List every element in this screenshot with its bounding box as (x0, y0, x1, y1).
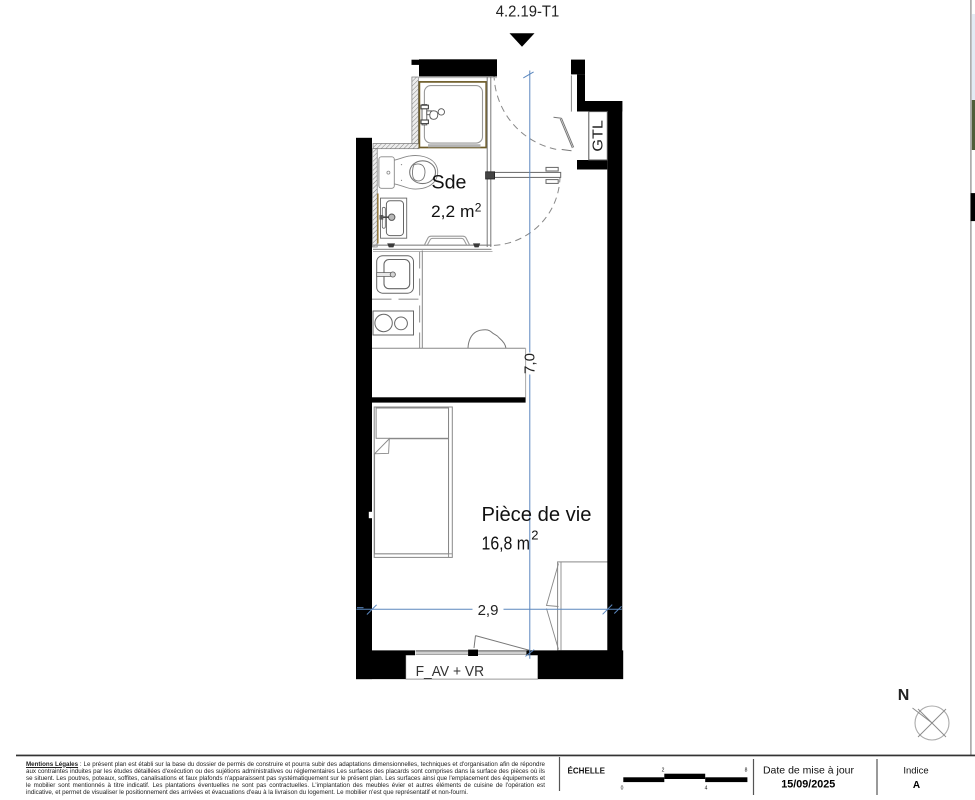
svg-text:15/09/2025: 15/09/2025 (781, 779, 835, 791)
svg-text:Sde: Sde (432, 173, 467, 194)
svg-text:8: 8 (745, 768, 748, 774)
svg-text:4: 4 (705, 786, 708, 792)
svg-text:A: A (913, 780, 920, 791)
svg-text:7,0: 7,0 (521, 353, 538, 374)
svg-text:ÉCHELLE: ÉCHELLE (568, 766, 606, 776)
svg-text:2: 2 (531, 528, 538, 543)
svg-text:GTL: GTL (591, 120, 607, 152)
svg-text:4.2.19-T1: 4.2.19-T1 (496, 4, 560, 21)
svg-text:0: 0 (621, 786, 624, 792)
svg-text:Indice: Indice (903, 766, 928, 777)
svg-text:F_AV + VR: F_AV + VR (416, 663, 485, 680)
svg-text:2: 2 (475, 201, 482, 215)
svg-text:Pièce de vie: Pièce de vie (482, 503, 592, 526)
svg-text:16,8 m: 16,8 m (482, 533, 531, 554)
svg-text:2,9: 2,9 (478, 602, 499, 619)
svg-text:2,2 m: 2,2 m (431, 202, 475, 221)
svg-text:Date de mise à jour: Date de mise à jour (763, 765, 855, 777)
svg-text:N: N (898, 687, 910, 704)
svg-text:2: 2 (662, 768, 665, 774)
